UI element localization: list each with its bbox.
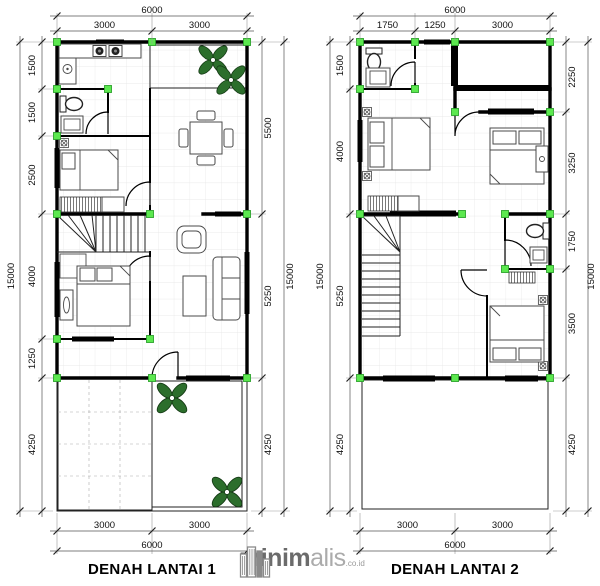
- bedroom-5-furniture: [490, 296, 548, 371]
- dim-label: 4250: [263, 434, 274, 455]
- dim-label: 15000: [6, 263, 17, 289]
- carport-area: [58, 379, 152, 510]
- dim-label: 5250: [335, 285, 346, 306]
- dim-label: 5250: [263, 285, 274, 306]
- dim-label: 3000: [492, 20, 513, 31]
- dim-label: 1750: [567, 231, 578, 252]
- dim-label: 2500: [27, 164, 38, 185]
- dim-label: 4250: [567, 434, 578, 455]
- dim-label: 3000: [94, 20, 115, 31]
- dim-label: 1750: [377, 20, 398, 31]
- floorplan-lantai-1: [54, 39, 251, 512]
- dim-label: 1500: [27, 55, 38, 76]
- dim-label: 3250: [567, 152, 578, 173]
- dim-label: 4000: [335, 141, 346, 162]
- dim-label: 4250: [335, 434, 346, 455]
- dim-label: 15000: [586, 263, 597, 289]
- brand-light: alis: [310, 544, 346, 572]
- dim-label: 5500: [263, 117, 274, 138]
- dim-label: 3000: [492, 520, 513, 531]
- dim-label: 6000: [444, 5, 465, 16]
- plan2-title: DENAH LANTAI 2: [360, 561, 550, 578]
- dim-label: 1500: [335, 55, 346, 76]
- roof-deck-area: [362, 380, 548, 509]
- carport-joints: [58, 380, 152, 510]
- bedroom-4-furniture: [490, 128, 548, 184]
- dim-label: 6000: [141, 5, 162, 16]
- dim-label: 4250: [27, 434, 38, 455]
- cabinet: [60, 197, 124, 212]
- dim-label: 15000: [285, 263, 296, 289]
- dim-label: 3000: [189, 520, 210, 531]
- void-area: [458, 44, 548, 87]
- floorplan-lantai-2: [357, 39, 554, 510]
- dim-label: 3000: [397, 520, 418, 531]
- dim-label: 4000: [27, 266, 38, 287]
- dim-label: 6000: [444, 540, 465, 551]
- brand-logo: minimalis.co.id: [239, 544, 365, 573]
- blueprint-page: 6000 3000 3000 3000 3000 6000 15000 1500…: [0, 0, 600, 586]
- dim-label: 3500: [567, 313, 578, 334]
- plan1-title: DENAH LANTAI 1: [57, 561, 247, 578]
- dim-label: 3000: [189, 20, 210, 31]
- floorplans-drawing: 6000 3000 3000 3000 3000 6000 15000 1500…: [0, 0, 600, 586]
- dim-label: 1500: [27, 102, 38, 123]
- buildings-icon: [239, 544, 271, 578]
- dim-label: 2250: [567, 66, 578, 87]
- dim-label: 15000: [315, 263, 326, 289]
- dim-label: 6000: [141, 540, 162, 551]
- dim-label: 3000: [94, 520, 115, 531]
- brand-suffix: .co.id: [346, 559, 365, 568]
- dim-label: 1250: [27, 348, 38, 369]
- dim-label: 1250: [424, 20, 445, 31]
